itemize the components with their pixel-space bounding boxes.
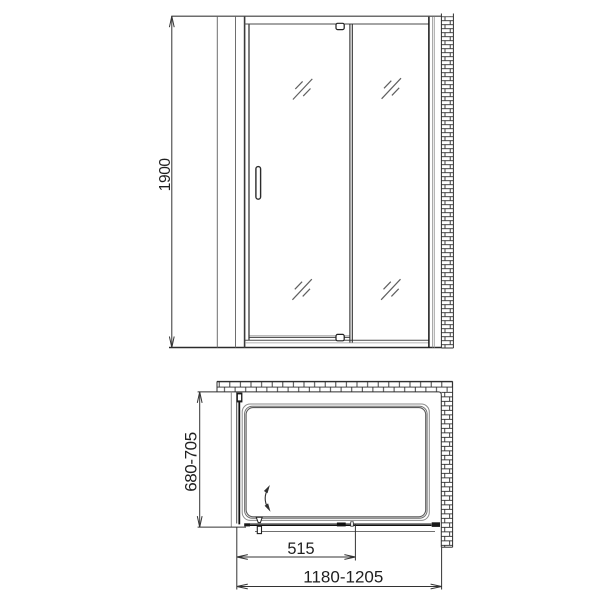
svg-text:515: 515 [287, 540, 314, 558]
svg-text:1180-1205: 1180-1205 [303, 568, 383, 587]
svg-text:680-705: 680-705 [181, 432, 200, 492]
svg-text:1900: 1900 [157, 158, 174, 192]
